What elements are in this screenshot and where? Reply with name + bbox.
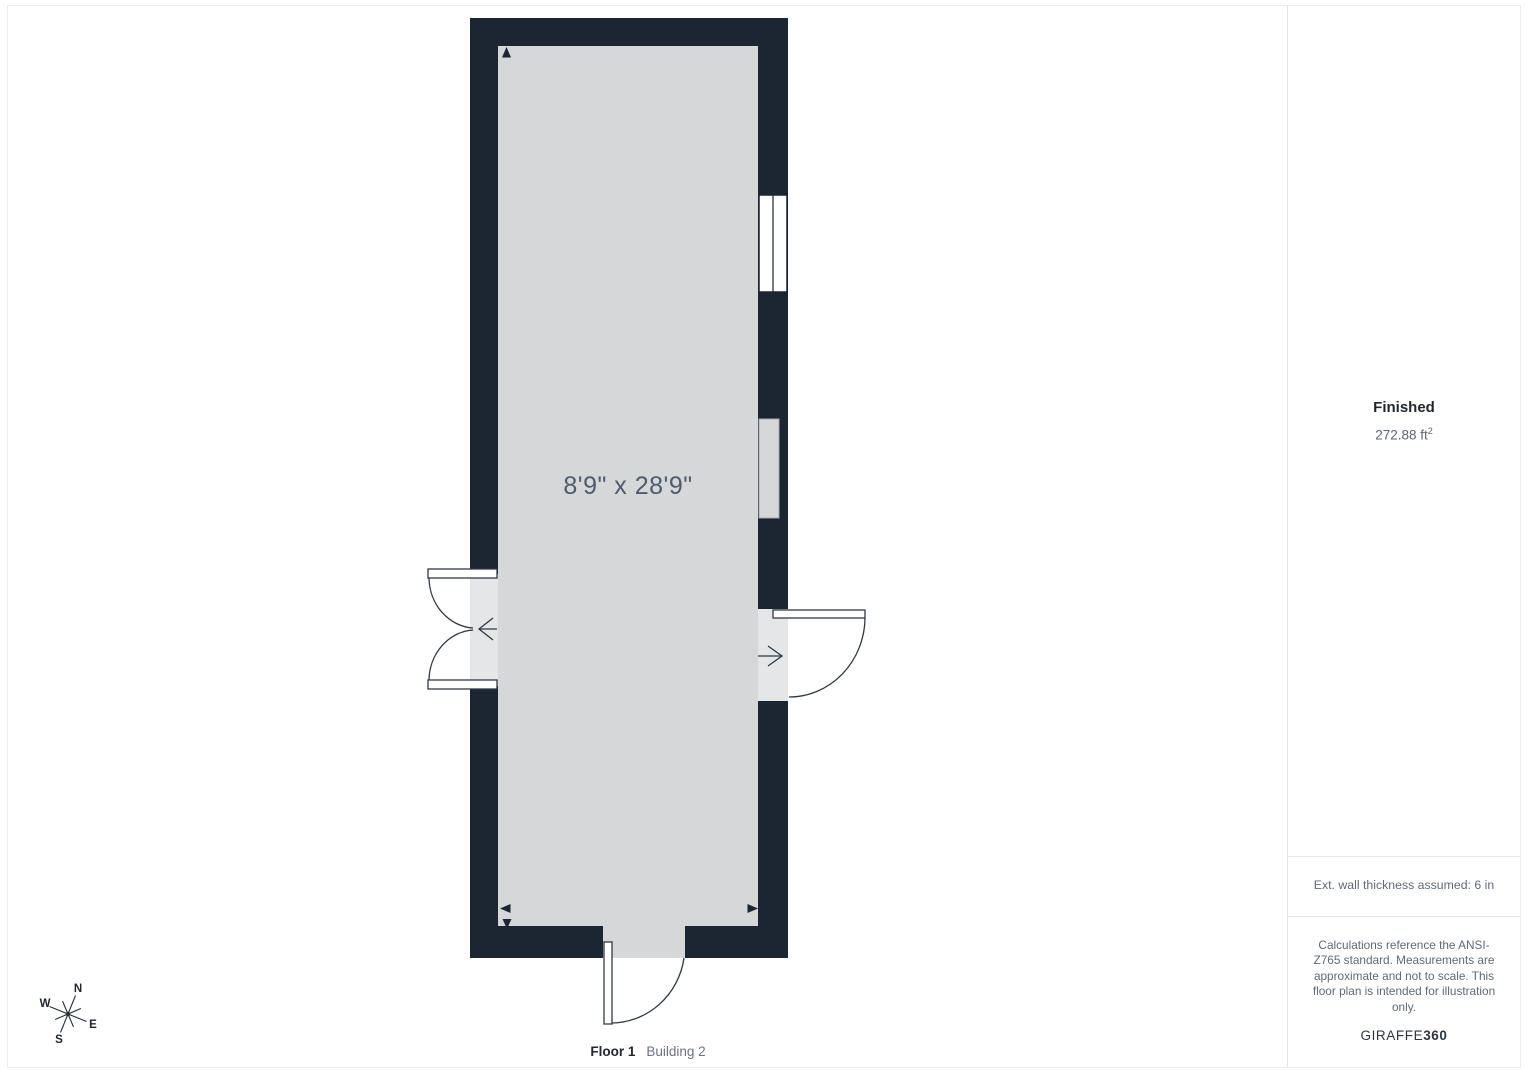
compass-east-label: E bbox=[89, 1019, 97, 1031]
sidebar-divider-bottom bbox=[1288, 916, 1520, 917]
floor-caption: Floor 1Building 2 bbox=[8, 1044, 1288, 1059]
brand-suffix: 360 bbox=[1423, 1028, 1447, 1043]
area-number: 272.88 ft bbox=[1375, 428, 1428, 443]
brand-name: GIRAFFE bbox=[1360, 1028, 1423, 1043]
door-threshold-bottom bbox=[603, 926, 685, 958]
finish-status-label: Finished bbox=[1288, 399, 1520, 416]
wall-niche bbox=[759, 419, 779, 518]
building-name: Building 2 bbox=[646, 1044, 705, 1059]
area-unit-superscript: 2 bbox=[1428, 426, 1433, 436]
info-sidebar: Finished 272.88 ft2 Ext. wall thickness … bbox=[1287, 6, 1520, 1067]
sidebar-divider-top bbox=[1288, 856, 1520, 857]
compass-rose bbox=[50, 996, 87, 1033]
door-threshold-left bbox=[470, 574, 498, 686]
room-dimension-label: 8'9" x 28'9" bbox=[498, 472, 758, 501]
door-threshold-right bbox=[758, 609, 788, 701]
floor-name: Floor 1 bbox=[590, 1044, 635, 1059]
window bbox=[759, 195, 787, 292]
compass-north-label: N bbox=[74, 983, 82, 995]
compass-west-label: W bbox=[40, 998, 51, 1010]
area-value: 272.88 ft2 bbox=[1288, 426, 1520, 443]
wall-thickness-note: Ext. wall thickness assumed: 6 in bbox=[1288, 878, 1520, 892]
floorplan-page: N E S W 8'9" x 28'9" Floor 1Building 2 F… bbox=[7, 5, 1521, 1068]
giraffe360-logo: GIRAFFE360 bbox=[1288, 1028, 1520, 1043]
disclaimer-text: Calculations reference the ANSI-Z765 sta… bbox=[1309, 938, 1499, 1015]
